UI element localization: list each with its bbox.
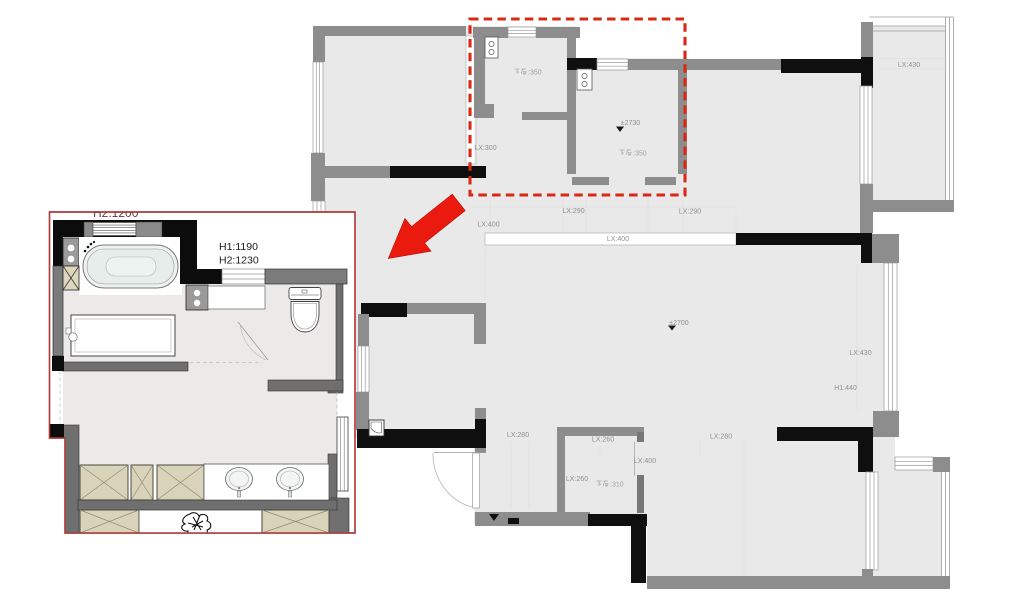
svg-text::350: :350 [633,151,647,158]
svg-text::350: :350 [528,70,542,77]
svg-text:H1:440: H1:440 [834,385,857,392]
svg-text:H1:1190: H1:1190 [219,241,258,253]
svg-text:LX:280: LX:280 [507,432,529,439]
svg-text::310: :310 [610,482,624,489]
svg-text:LX:290: LX:290 [562,208,584,215]
svg-text:LX:260: LX:260 [592,437,614,444]
svg-text:LX:400: LX:400 [607,236,629,243]
svg-text:LX:430: LX:430 [849,350,871,357]
svg-text:LX:260: LX:260 [566,476,588,483]
svg-text:LX:400: LX:400 [634,458,656,465]
svg-text:LX:430: LX:430 [898,62,920,69]
svg-text:LX:300: LX:300 [474,145,496,152]
svg-text:±2730: ±2730 [621,120,641,127]
svg-text:H2:1200: H2:1200 [93,206,139,220]
svg-text:LX:400: LX:400 [477,222,499,229]
svg-text:H2:1230: H2:1230 [219,255,259,267]
svg-text:LX:280: LX:280 [710,434,732,441]
svg-text:LX:290: LX:290 [679,209,701,216]
